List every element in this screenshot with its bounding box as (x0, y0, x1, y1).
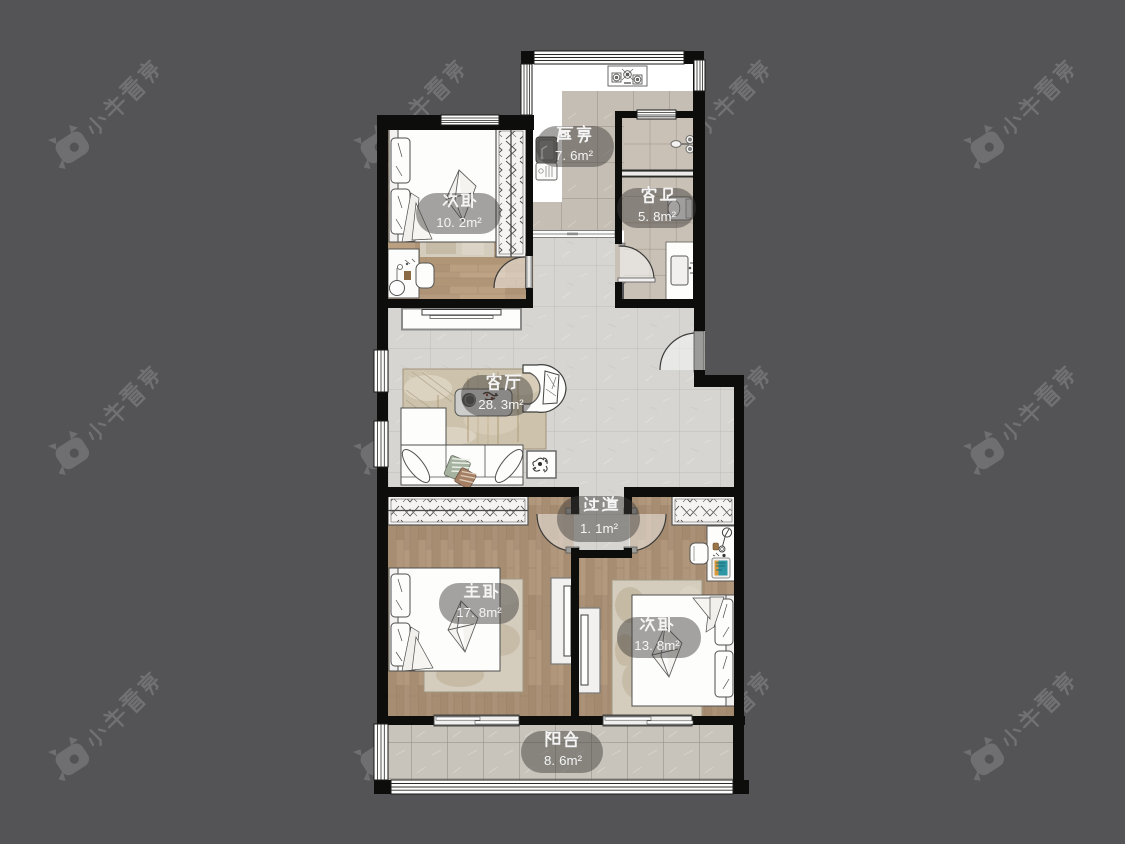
svg-text:7.6m²: 7.6m² (555, 148, 594, 163)
svg-text:5.8m²: 5.8m² (638, 209, 677, 224)
svg-text:10.2m²: 10.2m² (436, 215, 482, 230)
svg-text:1.1m²: 1.1m² (580, 521, 619, 536)
svg-text:13.8m²: 13.8m² (634, 638, 680, 653)
svg-text:17.8m²: 17.8m² (456, 605, 502, 620)
svg-text:28.3m²: 28.3m² (478, 397, 524, 412)
svg-text:8.6m²: 8.6m² (544, 753, 583, 768)
